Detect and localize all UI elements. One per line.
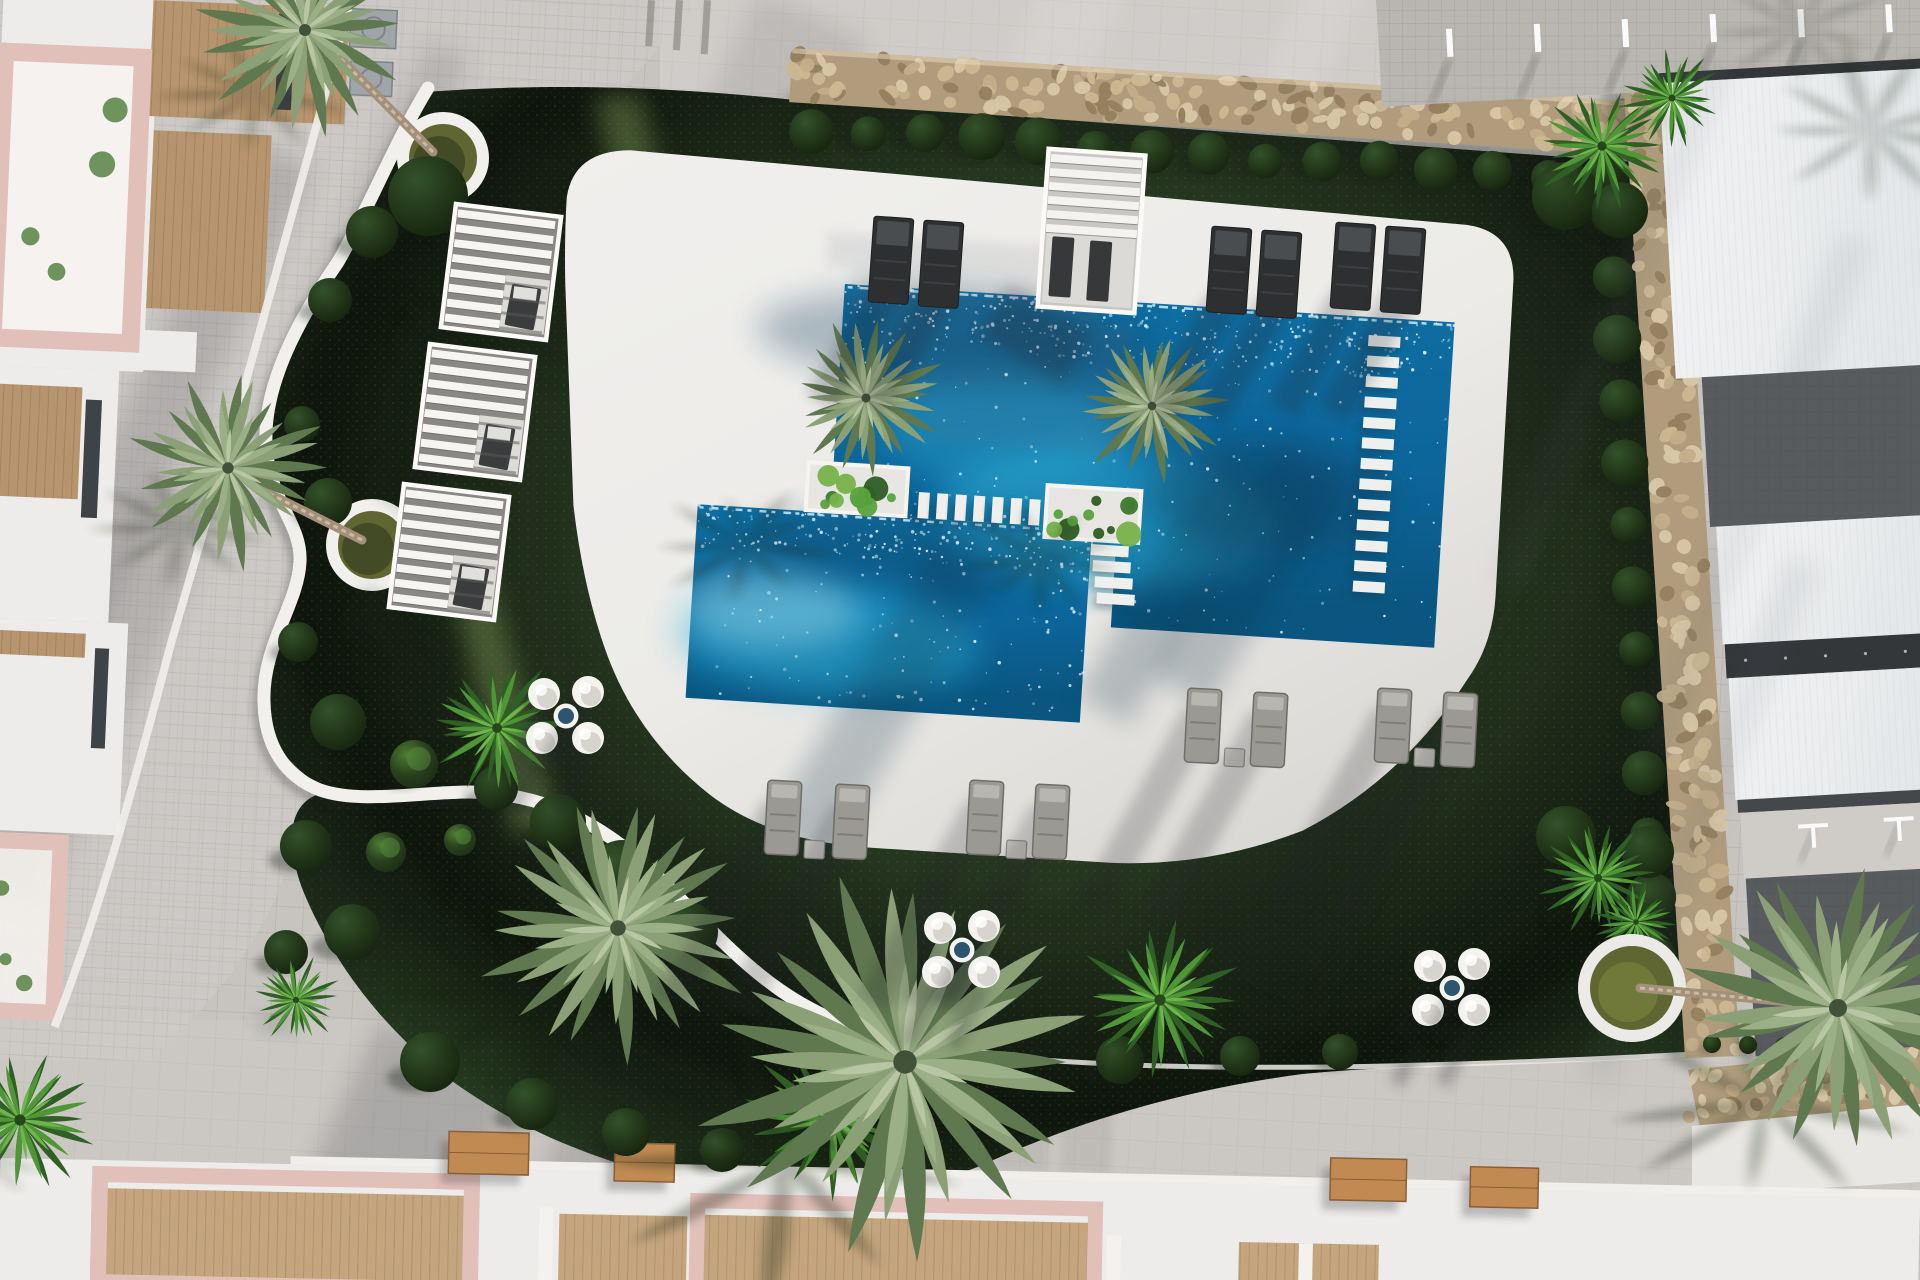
- pool-step: [1356, 519, 1389, 532]
- wall-divider: [1298, 1243, 1313, 1280]
- pergola-lounger: [1048, 236, 1074, 297]
- pool-step: [1353, 581, 1386, 594]
- stepping-stone: [954, 494, 967, 521]
- pergola-lounger: [1086, 240, 1112, 301]
- pool-step: [1364, 396, 1397, 409]
- building-slab: [135, 330, 197, 373]
- pool-step: [1355, 540, 1388, 553]
- wall-divider: [538, 1207, 554, 1280]
- pool-step: [1359, 478, 1392, 491]
- pool-step: [1362, 437, 1395, 450]
- scene-canvas: [0, 0, 1920, 1280]
- planter-island: [805, 462, 908, 519]
- pool-step: [1354, 560, 1387, 573]
- stepping-stone: [1010, 498, 1023, 525]
- pool-step: [1360, 458, 1393, 471]
- wall-divider: [1106, 1235, 1121, 1280]
- stepping-stone: [917, 492, 930, 519]
- stepping-stone: [991, 497, 1004, 524]
- aerial-pool-garden-render: [0, 0, 1920, 1280]
- stepping-stone: [936, 493, 949, 520]
- pool-step: [1358, 499, 1391, 512]
- stepping-stone: [973, 496, 986, 523]
- pool-step: [1363, 417, 1396, 430]
